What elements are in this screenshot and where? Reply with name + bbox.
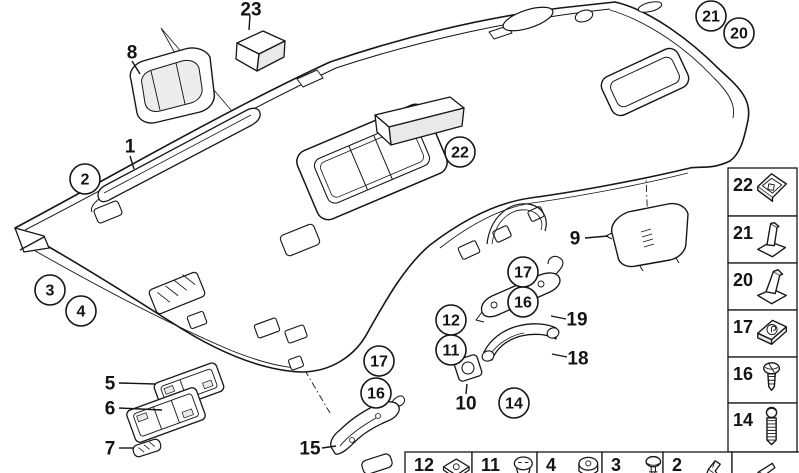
part-cell-number: 3	[611, 455, 621, 473]
callout-number: 19	[566, 310, 587, 331]
part-cell-number: 4	[546, 455, 556, 473]
strip-cell-4[interactable]: 4	[537, 452, 602, 473]
sidebar-cell-20[interactable]: 20	[728, 263, 797, 310]
leader-line	[466, 384, 467, 394]
leader-line	[551, 316, 566, 319]
part-cell-number: 11	[481, 455, 500, 473]
sidebar-cell-21[interactable]: 21	[728, 216, 797, 263]
callout-number: 3	[46, 283, 55, 300]
part-cell-number: 2	[672, 455, 682, 473]
callout-number: 17	[370, 354, 388, 371]
callout-circle-20-5[interactable]: 20	[724, 18, 754, 48]
callout-number: 12	[442, 313, 460, 330]
callout-label-7[interactable]: 7	[105, 439, 133, 460]
callout-circle-2-0[interactable]: 2	[70, 164, 100, 194]
callout-number: 14	[505, 396, 523, 413]
part-cell-number: 16	[733, 364, 753, 384]
leader-line	[119, 408, 162, 410]
callout-label-19[interactable]: 19	[551, 310, 588, 331]
callout-number: 9	[570, 229, 581, 250]
sidebar-cell-17[interactable]: 17	[728, 310, 797, 357]
callout-label-18[interactable]: 18	[552, 349, 589, 370]
callout-circle-17-10[interactable]: 17	[364, 346, 394, 376]
headliner-parts-diagram: 2342221201716121117161423819191810155672…	[0, 0, 799, 473]
leader-line	[322, 446, 336, 448]
callout-circle-11-9[interactable]: 11	[436, 335, 466, 365]
callout-number: 7	[105, 439, 116, 460]
callout-number: 18	[567, 349, 588, 370]
screw-long-icon	[767, 407, 777, 444]
leader-line	[130, 156, 134, 169]
strip-cell-12[interactable]: 12	[405, 452, 472, 473]
callout-label-1[interactable]: 1	[125, 137, 136, 169]
sidebar-cell-14[interactable]: 14	[728, 403, 797, 452]
callout-number: 15	[299, 439, 321, 460]
callout-number: 21	[702, 9, 720, 26]
callout-number: 16	[514, 295, 532, 312]
leader-line	[585, 236, 608, 238]
callout-label-6[interactable]: 6	[105, 399, 162, 420]
callout-circle-16-7[interactable]: 16	[508, 287, 538, 317]
callout-circle-17-6[interactable]: 17	[508, 257, 538, 287]
grommet-icon	[579, 457, 598, 473]
callout-circle-12-8[interactable]: 12	[436, 305, 466, 335]
callout-number: 17	[514, 265, 532, 282]
callout-number: 20	[730, 26, 748, 43]
callout-circle-16-11[interactable]: 16	[361, 378, 391, 408]
strip-cell-11[interactable]: 11	[472, 452, 537, 473]
leader-line	[119, 383, 155, 384]
callout-number: 4	[77, 304, 86, 321]
callout-label-8[interactable]: 8	[127, 43, 140, 74]
callout-label-9[interactable]: 9	[570, 229, 608, 250]
callout-number: 2	[81, 172, 90, 189]
callout-label-15[interactable]: 15	[299, 439, 336, 460]
callout-number: 16	[367, 386, 385, 403]
callout-label-23[interactable]: 23	[240, 0, 261, 30]
part-cell-number: 22	[733, 175, 753, 195]
callout-number: 1	[125, 137, 136, 158]
callout-label-10[interactable]: 10	[455, 384, 476, 415]
leader-line	[552, 354, 567, 357]
callout-number: 10	[455, 394, 476, 415]
part-cell-number: 17	[733, 317, 753, 337]
callout-circle-14-12[interactable]: 14	[499, 388, 529, 418]
strip-cell-3[interactable]: 3	[602, 452, 663, 473]
strip-cell-2[interactable]: 2	[663, 452, 732, 473]
callout-circle-3-1[interactable]: 3	[35, 275, 65, 305]
strip-cell-end[interactable]	[732, 452, 799, 473]
callout-number: 23	[240, 0, 261, 21]
callout-number: 8	[127, 43, 138, 64]
part-cell-number: 20	[733, 270, 753, 290]
part-cell-number: 21	[733, 223, 753, 243]
part-cell-number: 12	[414, 455, 434, 473]
callout-circle-4-2[interactable]: 4	[66, 296, 96, 326]
callout-number: 5	[105, 374, 116, 395]
callout-circle-21-4[interactable]: 21	[696, 1, 726, 31]
callout-number: 11	[443, 343, 460, 360]
callout-overlay: 2342221201716121117161423819191810155672…	[0, 0, 799, 473]
callout-label-5[interactable]: 5	[105, 374, 155, 395]
callout-circle-22-3[interactable]: 22	[445, 137, 475, 167]
callout-number: 22	[451, 145, 469, 162]
part-cell-number: 14	[733, 410, 753, 430]
sidebar-cell-16[interactable]: 16	[728, 357, 797, 403]
callout-number: 6	[105, 399, 116, 420]
sidebar-cell-22[interactable]: 22	[728, 168, 797, 216]
